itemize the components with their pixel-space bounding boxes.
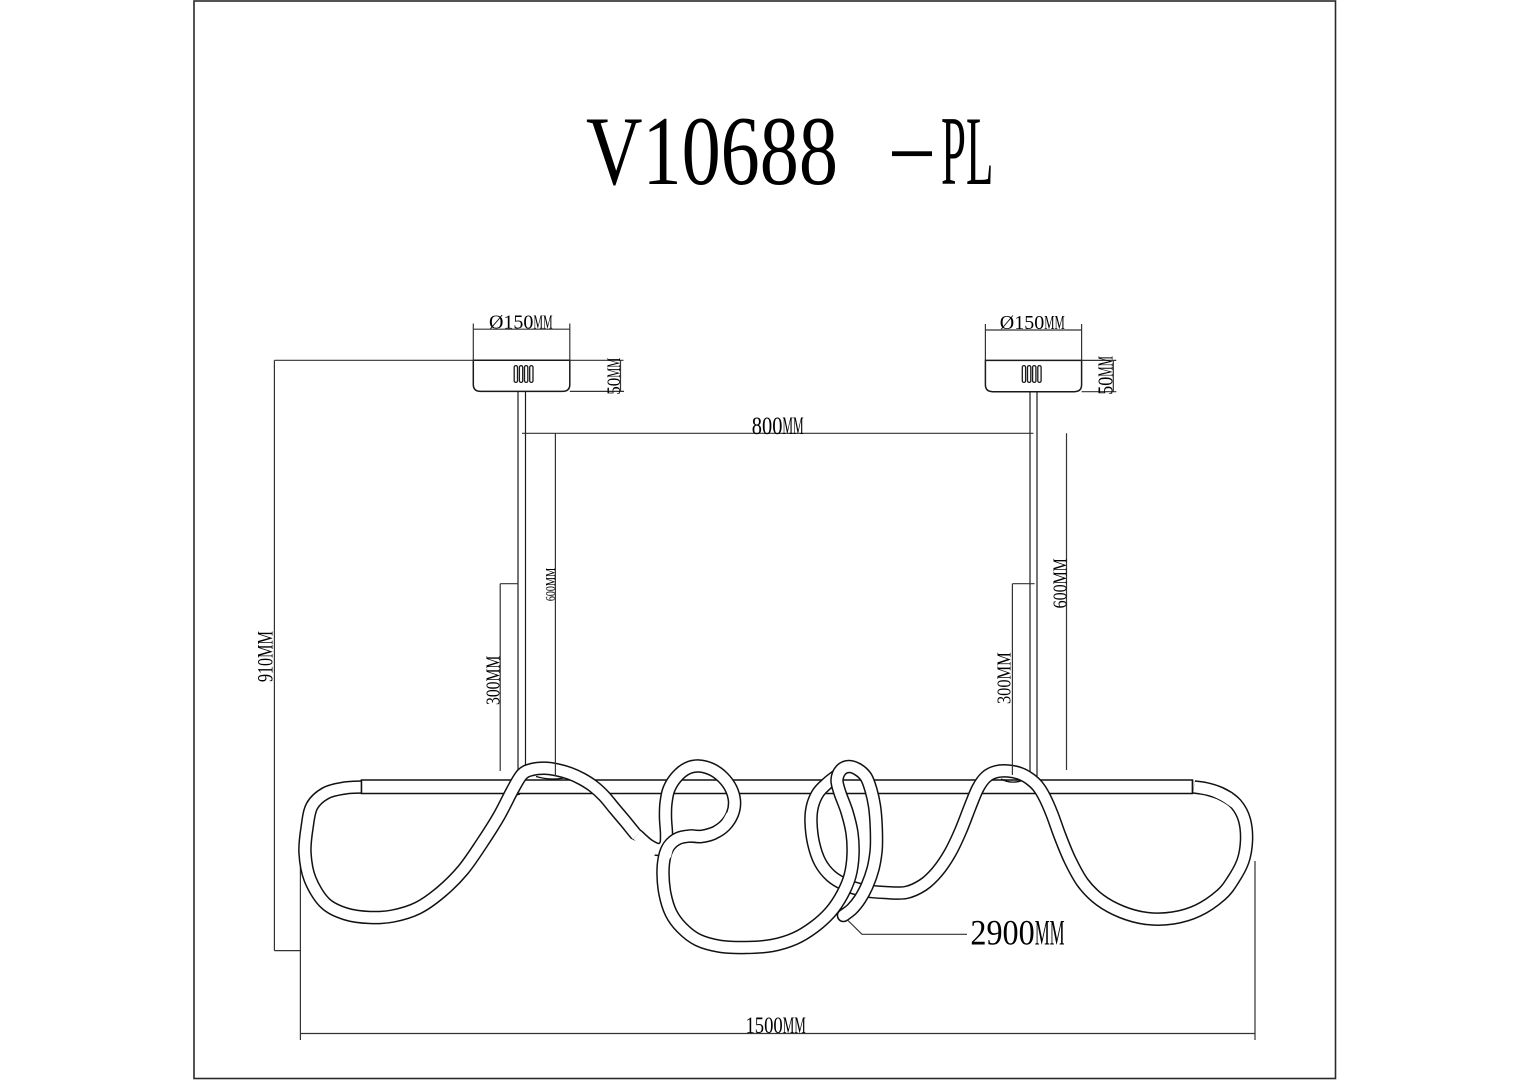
svg-text:MM: MM	[1049, 558, 1071, 584]
svg-text:300: 300	[482, 682, 504, 706]
svg-text:50: 50	[1094, 377, 1118, 395]
svg-text:Ø150: Ø150	[1000, 312, 1044, 334]
svg-text:1500: 1500	[746, 1013, 783, 1039]
svg-text:800: 800	[752, 411, 783, 440]
svg-text:V10688: V10688	[586, 97, 838, 206]
svg-text:600: 600	[544, 586, 559, 601]
svg-text:PL: PL	[941, 97, 993, 206]
svg-text:MM: MM	[482, 656, 504, 682]
svg-text:MM: MM	[1035, 913, 1065, 953]
svg-text:MM: MM	[533, 312, 552, 334]
svg-text:MM: MM	[782, 411, 803, 440]
svg-text:Ø150: Ø150	[489, 312, 533, 334]
svg-text:2900: 2900	[970, 913, 1034, 953]
svg-text:MM: MM	[1044, 312, 1065, 334]
svg-text:MM: MM	[994, 652, 1016, 679]
svg-text:MM: MM	[252, 631, 277, 658]
svg-text:MM: MM	[1094, 356, 1118, 377]
svg-text:600: 600	[1049, 584, 1071, 608]
svg-text:50: 50	[604, 378, 625, 395]
svg-text:300: 300	[994, 680, 1016, 705]
svg-text:MM: MM	[544, 567, 559, 586]
svg-text:MM: MM	[604, 358, 625, 378]
svg-text:910: 910	[252, 658, 277, 682]
svg-text:MM: MM	[783, 1013, 806, 1039]
